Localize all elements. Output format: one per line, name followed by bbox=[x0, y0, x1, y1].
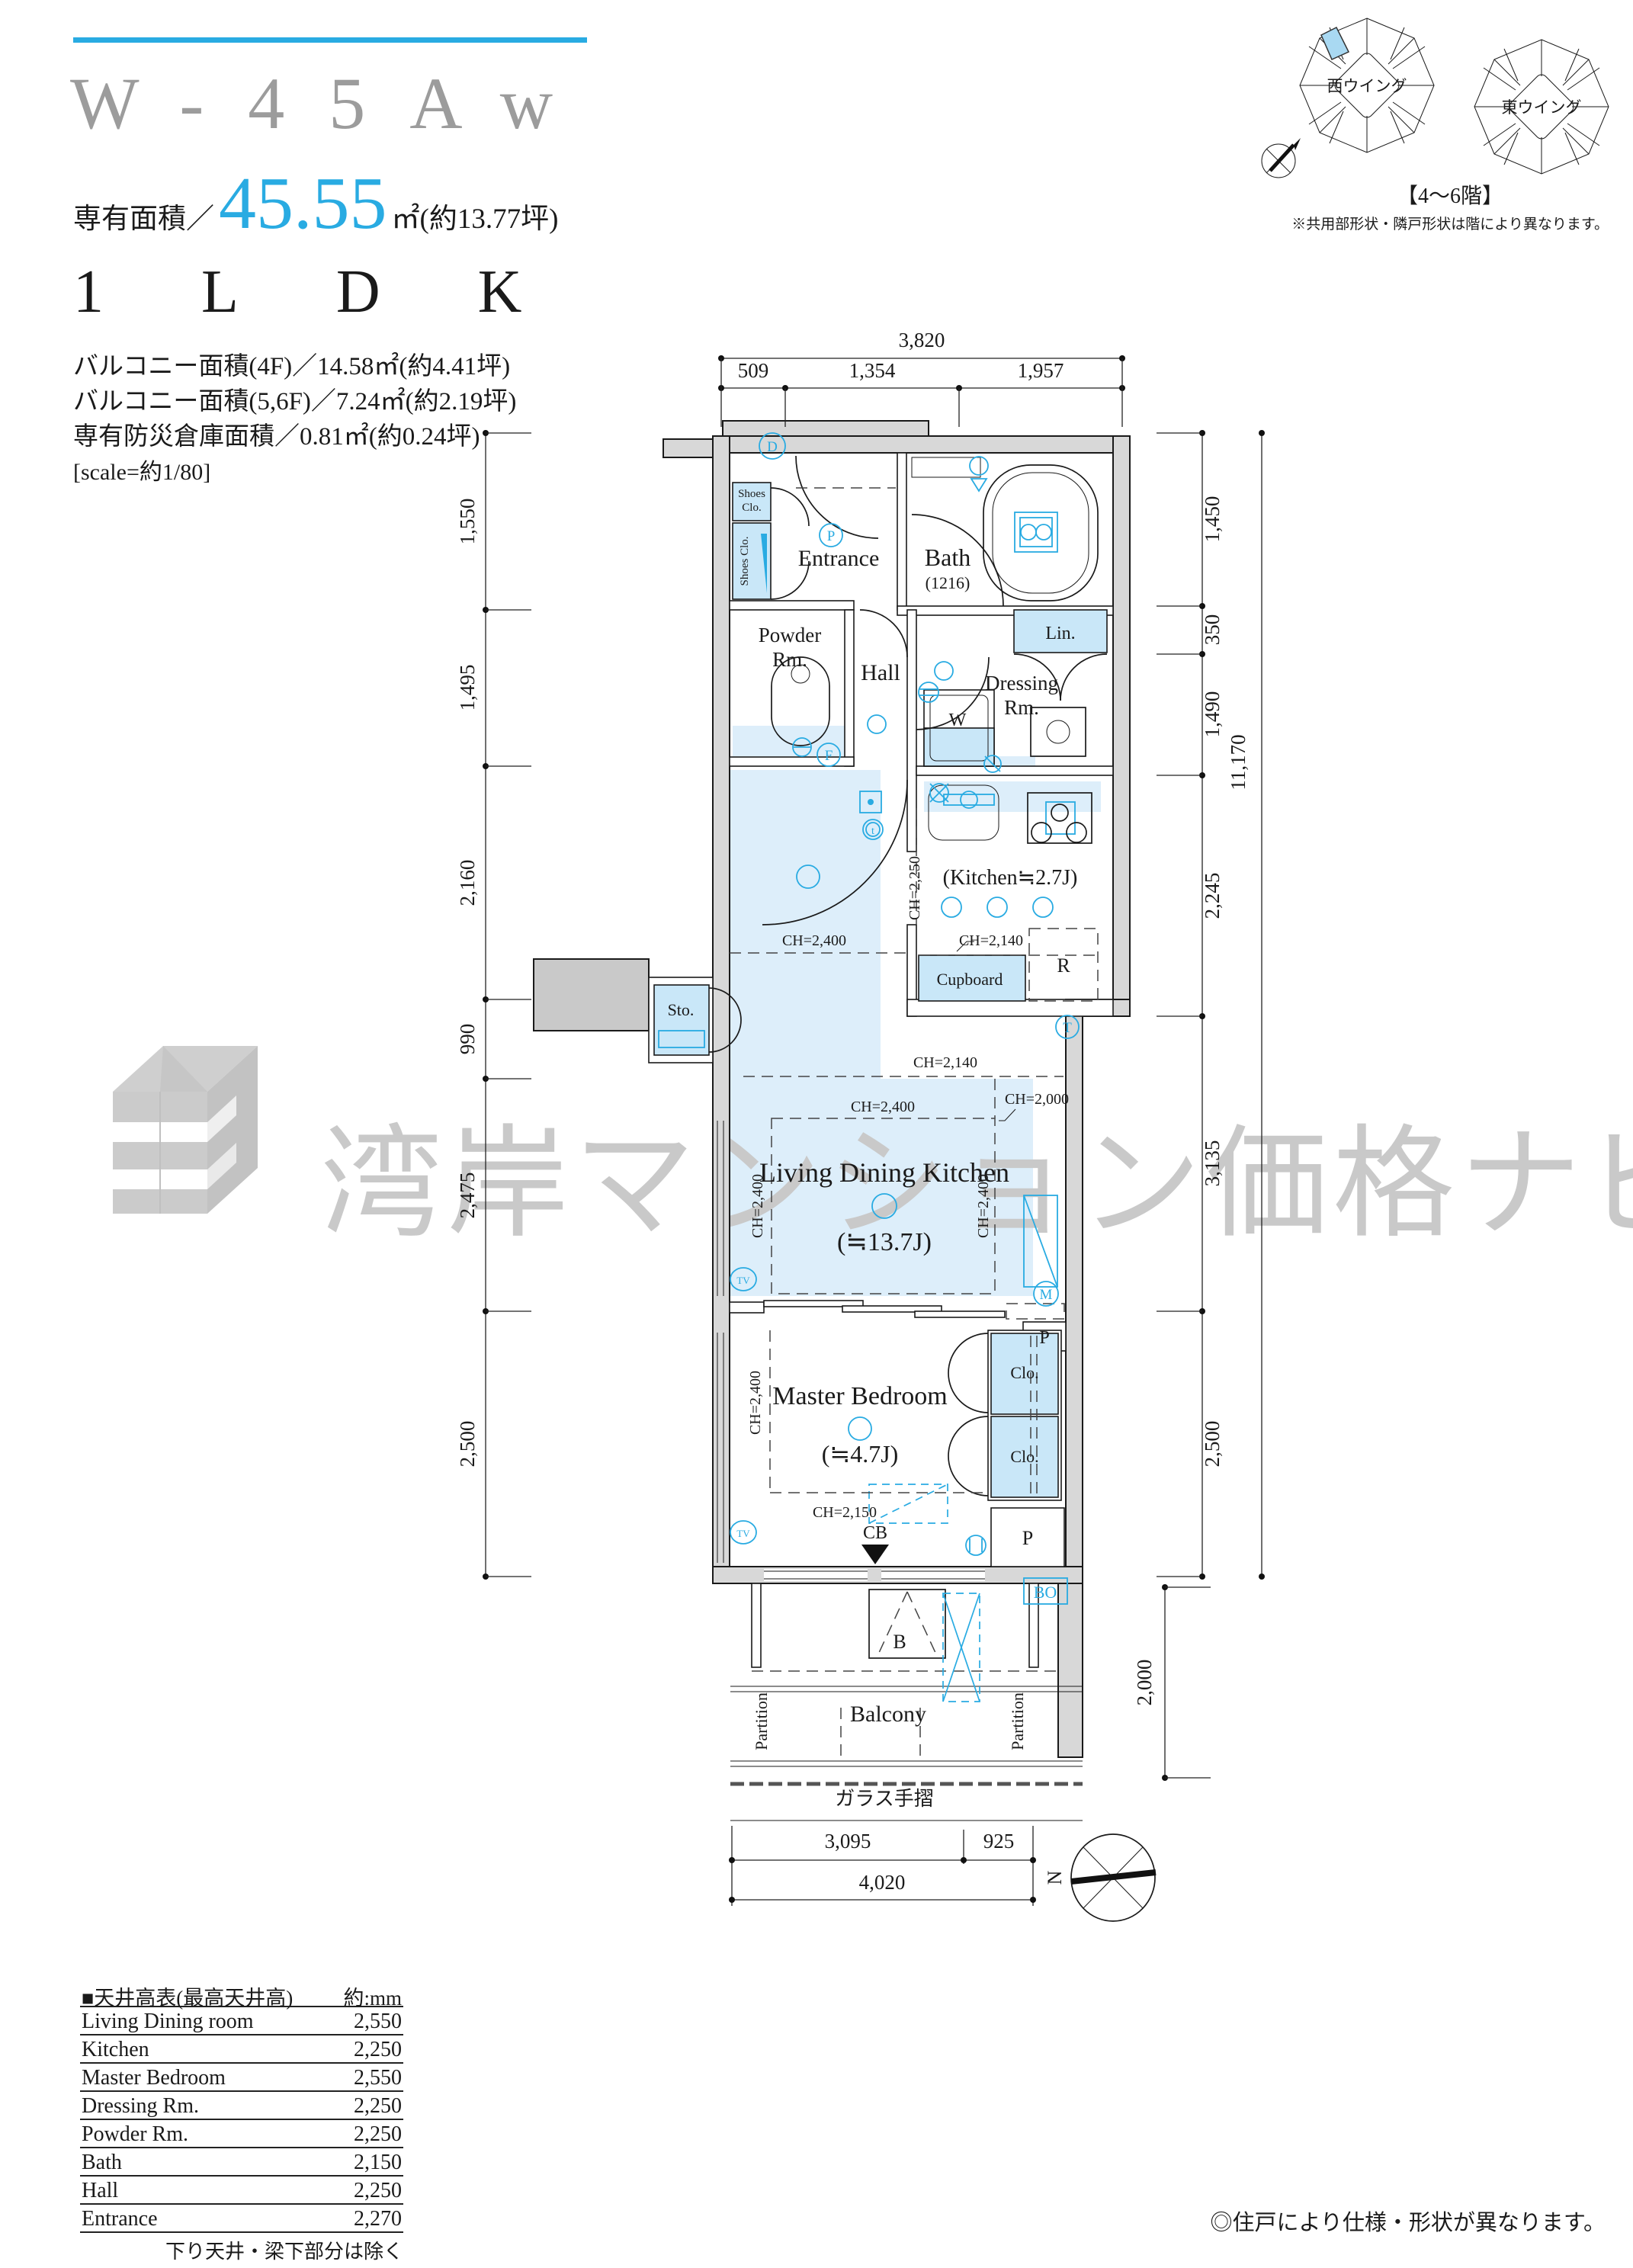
downlight bbox=[868, 715, 886, 733]
tv-marker: TV bbox=[730, 1521, 756, 1544]
svg-text:CH=2,400: CH=2,400 bbox=[747, 1371, 764, 1435]
svg-text:350: 350 bbox=[1201, 614, 1224, 646]
sliding-partition bbox=[730, 1301, 1064, 1319]
svg-text:Sto.: Sto. bbox=[668, 1000, 695, 1019]
svg-text:W: W bbox=[949, 711, 967, 730]
row-label: Master Bedroom bbox=[82, 2066, 226, 2090]
floor-plan-page: W-45Aw 専有面積／ 45.55 ㎡(約13.77坪) 1LDK バルコニー… bbox=[0, 0, 1633, 2268]
svg-text:ガラス手摺: ガラス手摺 bbox=[835, 1788, 933, 1810]
door-arc bbox=[948, 1456, 988, 1496]
wing-diagrams: 西ウイング 東ウイング bbox=[1262, 18, 1609, 233]
balcony-partition-left bbox=[752, 1583, 761, 1667]
svg-text:1,354: 1,354 bbox=[849, 359, 896, 382]
svg-text:11,170: 11,170 bbox=[1227, 734, 1250, 790]
b-hatch-box bbox=[869, 1590, 945, 1658]
wall-dressing-kitchen bbox=[916, 766, 1113, 775]
svg-text:Clo.: Clo. bbox=[1010, 1447, 1038, 1466]
table-title: ■天井高表(最高天井高) bbox=[82, 1981, 293, 2011]
svg-text:【4〜6階】: 【4〜6階】 bbox=[1397, 184, 1503, 208]
svg-text:Entrance: Entrance bbox=[798, 546, 880, 571]
table-row: Dressing Rm. 2,250 bbox=[80, 2092, 403, 2120]
door-arc bbox=[1060, 654, 1107, 701]
dressing-basin bbox=[1047, 720, 1070, 743]
east-wing: 東ウイング bbox=[1474, 40, 1609, 174]
cb-triangle bbox=[861, 1545, 889, 1564]
svg-text:Clo.: Clo. bbox=[1010, 1363, 1038, 1382]
svg-text:Dressing: Dressing bbox=[985, 672, 1058, 695]
powder-door-arc bbox=[860, 610, 907, 657]
row-label: Powder Rm. bbox=[82, 2122, 188, 2147]
svg-text:Partition: Partition bbox=[752, 1692, 771, 1750]
svg-text:CH=2,000: CH=2,000 bbox=[1005, 1091, 1069, 1108]
svg-text:CH=2,140: CH=2,140 bbox=[959, 932, 1023, 949]
downlight bbox=[849, 1417, 871, 1440]
svg-text:CH=2,400: CH=2,400 bbox=[782, 932, 846, 949]
svg-text:Shoes: Shoes bbox=[738, 488, 765, 500]
table-row: Powder Rm. 2,250 bbox=[80, 2120, 403, 2148]
svg-text:M: M bbox=[1040, 1287, 1053, 1303]
svg-text:2,500: 2,500 bbox=[456, 1421, 479, 1468]
svg-text:4,020: 4,020 bbox=[859, 1871, 906, 1894]
table-header: ■天井高表(最高天井高) 約:mm bbox=[80, 1979, 403, 2007]
row-label: Entrance bbox=[82, 2207, 158, 2231]
svg-text:TV: TV bbox=[736, 1275, 750, 1286]
wall-kitchen-bottom bbox=[907, 999, 1113, 1016]
svg-text:T: T bbox=[1063, 1020, 1072, 1036]
wall-right-lower bbox=[1066, 999, 1083, 1583]
svg-text:TV: TV bbox=[736, 1528, 750, 1539]
wall-right-upper bbox=[1113, 436, 1130, 1016]
svg-text:Bath: Bath bbox=[925, 544, 970, 571]
svg-text:CH=2,140: CH=2,140 bbox=[913, 1054, 977, 1071]
wall-hall-dressing bbox=[907, 610, 916, 852]
svg-text:1,550: 1,550 bbox=[456, 499, 479, 545]
row-value: 2,250 bbox=[354, 2094, 402, 2119]
balcony-wall-right bbox=[1058, 1583, 1083, 1757]
svg-text:Balcony: Balcony bbox=[850, 1702, 926, 1727]
svg-text:R: R bbox=[1057, 954, 1070, 977]
svg-text:1,957: 1,957 bbox=[1018, 359, 1064, 382]
svg-text:2,160: 2,160 bbox=[456, 860, 479, 906]
svg-text:925: 925 bbox=[983, 1830, 1015, 1853]
svg-text:Lin.: Lin. bbox=[1045, 624, 1075, 643]
highlighted-unit bbox=[1321, 27, 1349, 59]
bath-fan-icon bbox=[970, 457, 988, 491]
svg-text:509: 509 bbox=[738, 359, 769, 382]
outlet-icon bbox=[966, 1535, 986, 1555]
jet-bath-icon bbox=[1015, 512, 1057, 552]
svg-text:CH=2,400: CH=2,400 bbox=[851, 1099, 915, 1115]
west-wing: 西ウイング bbox=[1300, 18, 1434, 152]
svg-text:t: t bbox=[871, 826, 874, 837]
svg-text:2,475: 2,475 bbox=[456, 1172, 479, 1219]
svg-text:西ウイング: 西ウイング bbox=[1327, 77, 1407, 95]
floor-plan-drawing: 湾岸マンション価格ナビ bbox=[0, 0, 1633, 2268]
wall-entrance-bath bbox=[897, 453, 906, 610]
dim-right-ticks bbox=[1157, 430, 1205, 1580]
table-row: Kitchen 2,250 bbox=[80, 2035, 403, 2064]
svg-text:1,450: 1,450 bbox=[1201, 496, 1224, 543]
table-row: Bath 2,150 bbox=[80, 2148, 403, 2177]
row-value: 2,550 bbox=[354, 2010, 402, 2034]
svg-text:CB: CB bbox=[863, 1523, 887, 1543]
svg-text:Master Bedroom: Master Bedroom bbox=[772, 1382, 947, 1410]
svg-text:Partition: Partition bbox=[1008, 1692, 1027, 1750]
common-area-block bbox=[534, 959, 649, 1031]
svg-text:CH=2,150: CH=2,150 bbox=[813, 1504, 877, 1521]
svg-text:(Kitchen≒2.7J): (Kitchen≒2.7J) bbox=[943, 866, 1078, 890]
table-row: Master Bedroom 2,550 bbox=[80, 2064, 403, 2092]
door-arc bbox=[948, 1333, 988, 1373]
wall-entrance-powder bbox=[730, 601, 854, 610]
door-arc bbox=[771, 488, 809, 526]
door-arc bbox=[948, 1416, 988, 1456]
svg-text:(≒4.7J): (≒4.7J) bbox=[822, 1440, 899, 1468]
svg-text:2,500: 2,500 bbox=[1201, 1421, 1224, 1468]
row-label: Bath bbox=[82, 2151, 122, 2175]
svg-text:Powder: Powder bbox=[759, 624, 822, 646]
svg-text:※共用部形状・隣戸形状は階により異なります。: ※共用部形状・隣戸形状は階により異なります。 bbox=[1291, 216, 1609, 233]
svg-text:Living Dining Kitchen: Living Dining Kitchen bbox=[759, 1157, 1009, 1188]
table-row: Hall 2,250 bbox=[80, 2177, 403, 2205]
svg-text:Cupboard: Cupboard bbox=[937, 970, 1003, 989]
svg-text:2,245: 2,245 bbox=[1201, 873, 1224, 919]
downlight bbox=[1033, 897, 1053, 917]
svg-text:3,135: 3,135 bbox=[1201, 1140, 1224, 1187]
svg-text:1,490: 1,490 bbox=[1201, 691, 1224, 738]
dim-left-ticks bbox=[483, 430, 531, 1580]
svg-text:Clo.: Clo. bbox=[742, 502, 761, 514]
svg-text:3,820: 3,820 bbox=[899, 329, 945, 351]
svg-text:Rm.: Rm. bbox=[1004, 696, 1039, 719]
ceiling-height-table: ■天井高表(最高天井高) 約:mm Living Dining room 2,5… bbox=[80, 1979, 403, 2264]
wall-powder-hall bbox=[845, 610, 854, 766]
svg-text:1,495: 1,495 bbox=[456, 665, 479, 711]
svg-text:P: P bbox=[827, 528, 836, 544]
footer-note: ◎住戸により仕様・形状が異なります。 bbox=[1210, 2205, 1606, 2237]
row-label: Hall bbox=[82, 2179, 118, 2203]
svg-text:Shoes Clo.: Shoes Clo. bbox=[739, 536, 751, 585]
svg-text:N: N bbox=[1044, 1870, 1066, 1885]
row-value: 2,250 bbox=[354, 2038, 402, 2062]
downlight bbox=[942, 897, 961, 917]
svg-text:CH=2,400: CH=2,400 bbox=[975, 1174, 992, 1238]
downlight bbox=[987, 897, 1007, 917]
door-arc bbox=[948, 1373, 988, 1413]
storage-box bbox=[654, 985, 709, 1055]
row-label: Living Dining room bbox=[82, 2010, 254, 2034]
compass: N bbox=[1044, 1834, 1156, 1921]
row-label: Dressing Rm. bbox=[82, 2094, 199, 2119]
svg-text:東ウイング: 東ウイング bbox=[1502, 98, 1582, 117]
table-row: Living Dining room 2,550 bbox=[80, 2007, 403, 2035]
svg-text:F: F bbox=[825, 748, 833, 764]
bathtub-inner bbox=[993, 473, 1089, 593]
svg-text:2,000: 2,000 bbox=[1133, 1660, 1156, 1706]
svg-text:P: P bbox=[1022, 1527, 1033, 1549]
compass-needle bbox=[1071, 1872, 1156, 1881]
row-value: 2,550 bbox=[354, 2066, 402, 2090]
svg-text:(1216): (1216) bbox=[926, 573, 970, 592]
svg-text:P: P bbox=[1039, 1328, 1049, 1348]
row-value: 2,250 bbox=[354, 2122, 402, 2147]
bed-dashed-box bbox=[869, 1484, 948, 1523]
table-row: Entrance 2,270 bbox=[80, 2205, 403, 2233]
row-value: 2,250 bbox=[354, 2179, 402, 2203]
corridor-wall-stub bbox=[663, 439, 713, 457]
watermark-logo bbox=[113, 1046, 258, 1214]
svg-text:B: B bbox=[893, 1631, 906, 1653]
wall-left bbox=[713, 436, 730, 1583]
row-label: Kitchen bbox=[82, 2038, 149, 2062]
svg-text:(≒13.7J): (≒13.7J) bbox=[837, 1228, 932, 1256]
svg-text:CH=2,250: CH=2,250 bbox=[906, 856, 923, 920]
svg-text:Hall: Hall bbox=[861, 660, 900, 685]
row-value: 2,270 bbox=[354, 2207, 402, 2231]
drain-x-box bbox=[943, 1593, 980, 1702]
svg-text:3,095: 3,095 bbox=[825, 1830, 871, 1853]
bathtub-outer bbox=[983, 465, 1098, 601]
table-unit: 約:mm bbox=[343, 1981, 402, 2011]
row-value: 2,150 bbox=[354, 2151, 402, 2175]
svg-text:BO: BO bbox=[1034, 1583, 1057, 1602]
table-footnote: 下り天井・梁下部分は除く bbox=[80, 2233, 403, 2264]
downlight bbox=[935, 662, 953, 680]
mini-compass-icon bbox=[1262, 138, 1301, 178]
svg-text:CH=2,400: CH=2,400 bbox=[749, 1174, 766, 1238]
svg-text:990: 990 bbox=[456, 1024, 479, 1055]
svg-text:D: D bbox=[767, 439, 778, 455]
svg-text:Rm.: Rm. bbox=[772, 648, 807, 671]
